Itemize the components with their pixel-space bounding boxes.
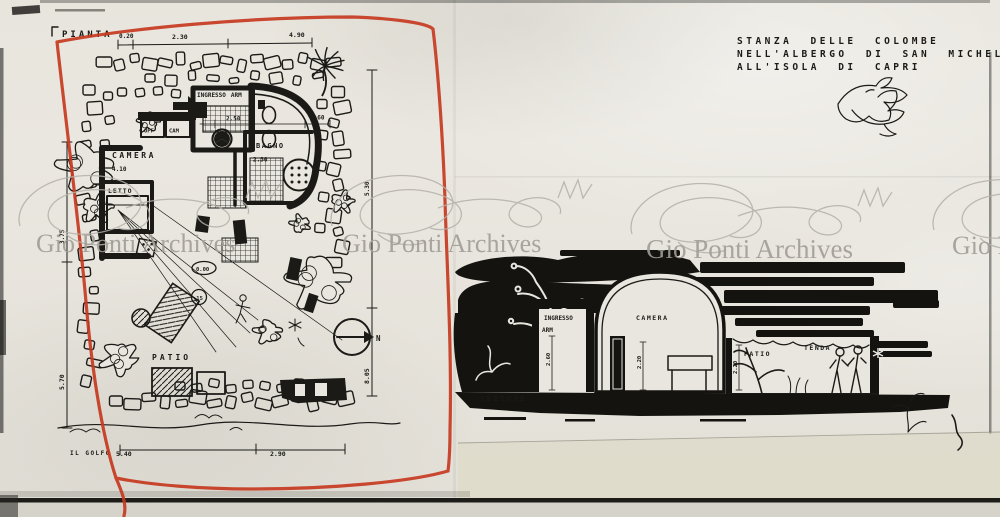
dim-bottom-right: 2.90 [270, 450, 286, 458]
title-line-1: STANZA DELLE COLOMBE [737, 36, 939, 47]
section-camera [596, 272, 724, 392]
room-label-camera-sec: CAMERA [636, 314, 668, 322]
plan-hatching [203, 106, 283, 262]
scanned-drawing: PIANTA 0.20 2.30 4.90 [0, 0, 1000, 517]
section-title: SEZIONE [480, 395, 527, 403]
dim-camera-h: 2.20 [637, 356, 643, 369]
plan-drawing: PIANTA 0.20 2.30 4.90 [52, 27, 400, 458]
section-ingresso [532, 299, 594, 392]
flower-icon [289, 319, 304, 346]
north-arrow-icon: N [334, 319, 381, 355]
room-label-ingresso-sec: INGRESSO [544, 315, 573, 322]
dim-arm-h: 2.60 [546, 353, 552, 366]
dim-patio-h: 2.20 [733, 361, 739, 374]
north-label: N [376, 334, 381, 343]
plan-top-dimensions: 0.20 2.30 4.90 [118, 31, 312, 49]
level-minus: ·15 [193, 296, 203, 302]
registration-mark [52, 27, 58, 36]
svg-text:0.20: 0.20 [119, 33, 134, 40]
svg-text:4.90: 4.90 [289, 31, 305, 39]
room-label-patio: PATIO [152, 353, 191, 362]
dim-right-lower: 8.05 [363, 368, 371, 384]
coast-label: IL GOLFO [70, 450, 111, 457]
fan-icon [211, 130, 231, 150]
artwork: PIANTA 0.20 2.30 4.90 [0, 0, 1000, 517]
svg-text:2.30: 2.30 [172, 33, 188, 41]
dim-bottom-left: 5.40 [116, 450, 132, 458]
dim-camera: 4.10 [112, 166, 127, 173]
room-label-patio-sec: PATIO [744, 350, 771, 358]
room-label-letto: LETTO [108, 187, 133, 195]
room-label-cam: CAM [169, 129, 180, 135]
level-zero: 0.00 [196, 267, 209, 273]
dim-left-upper: 3.75 [59, 229, 66, 244]
title-block: STANZA DELLE COLOMBE NELL'ALBERGO DI SAN… [737, 36, 1000, 136]
room-label-bagno: BAGNO [256, 142, 285, 150]
dim-left-lower: 5.70 [58, 374, 66, 390]
title-line-3: ALL'ISOLA DI CAPRI [737, 62, 921, 73]
dim-right-upper: 5.30 [364, 181, 371, 196]
section-drawing: SEZIONE INGRESSO ARM CAMERA PATIO TENDA … [454, 250, 950, 432]
room-label-off: OFF [144, 129, 154, 135]
dove-sketch-icon [838, 78, 907, 136]
palm-tree-icon [307, 47, 345, 96]
deck-chair [145, 283, 199, 342]
room-label-arm-sec: ARM [542, 327, 553, 334]
dim-bagno: 2.30 [253, 157, 268, 164]
table-icon [132, 309, 150, 327]
ground-band [455, 392, 950, 416]
room-label-camera: CAMERA [112, 151, 156, 160]
figure-sketch [236, 295, 250, 323]
room-label-tenda-sec: TENDA [804, 344, 831, 352]
dim-ingresso: 2.50 [226, 116, 241, 123]
room-label-ingresso: INGRESSOARM [197, 92, 242, 99]
title-line-2: NELL'ALBERGO DI SAN MICHELE [737, 49, 1000, 60]
dim-corridor: 1.60 [310, 115, 325, 122]
